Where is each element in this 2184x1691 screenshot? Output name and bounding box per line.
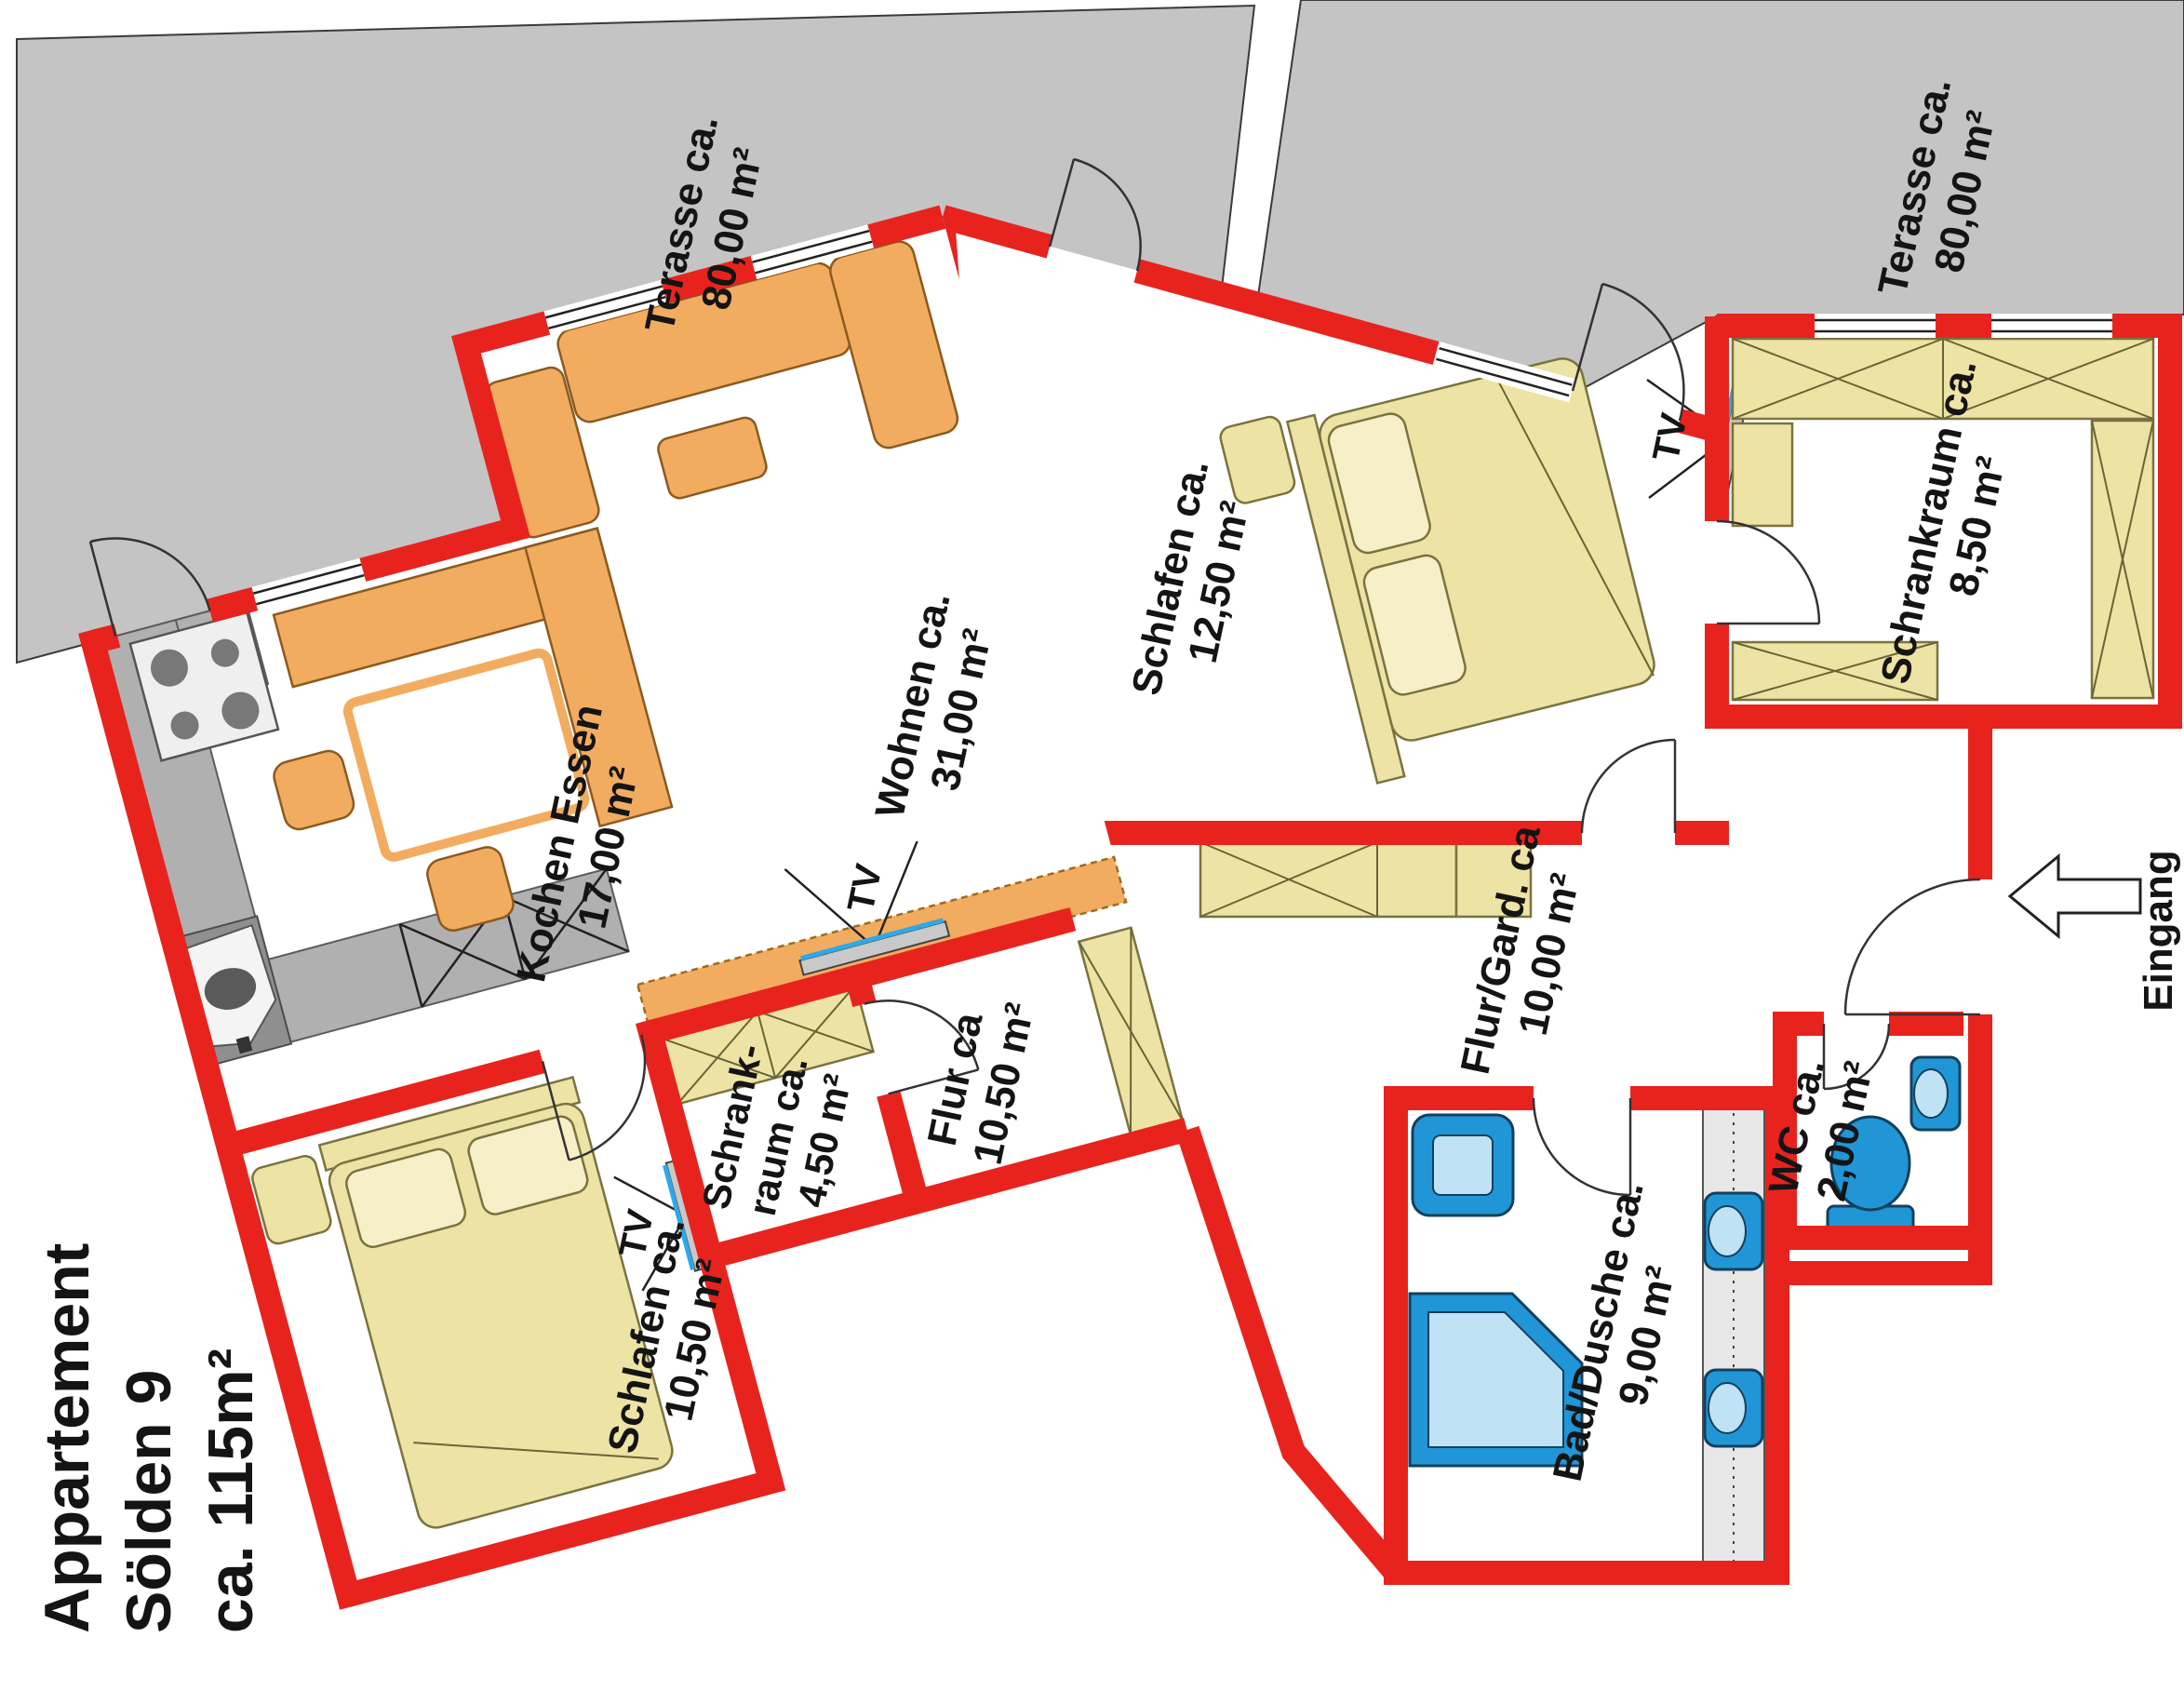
vanity-counter (1703, 1109, 1764, 1567)
floorplan: Schrank- raum ca. 4,50 m² Flur ca 10,50 … (0, 0, 2184, 1691)
label-eingang: Eingang (2136, 850, 2181, 1012)
bathtub-icon (1413, 1115, 1513, 1215)
entrance-arrow-icon (2010, 856, 2140, 936)
washbasin-icon (1911, 1057, 1960, 1130)
page-title: Appartement Sölden 9 ca. 115m² (32, 1226, 266, 1633)
wardrobe (1200, 842, 1531, 917)
sink-icon (1705, 1193, 1762, 1269)
sink-icon (1705, 1370, 1762, 1446)
